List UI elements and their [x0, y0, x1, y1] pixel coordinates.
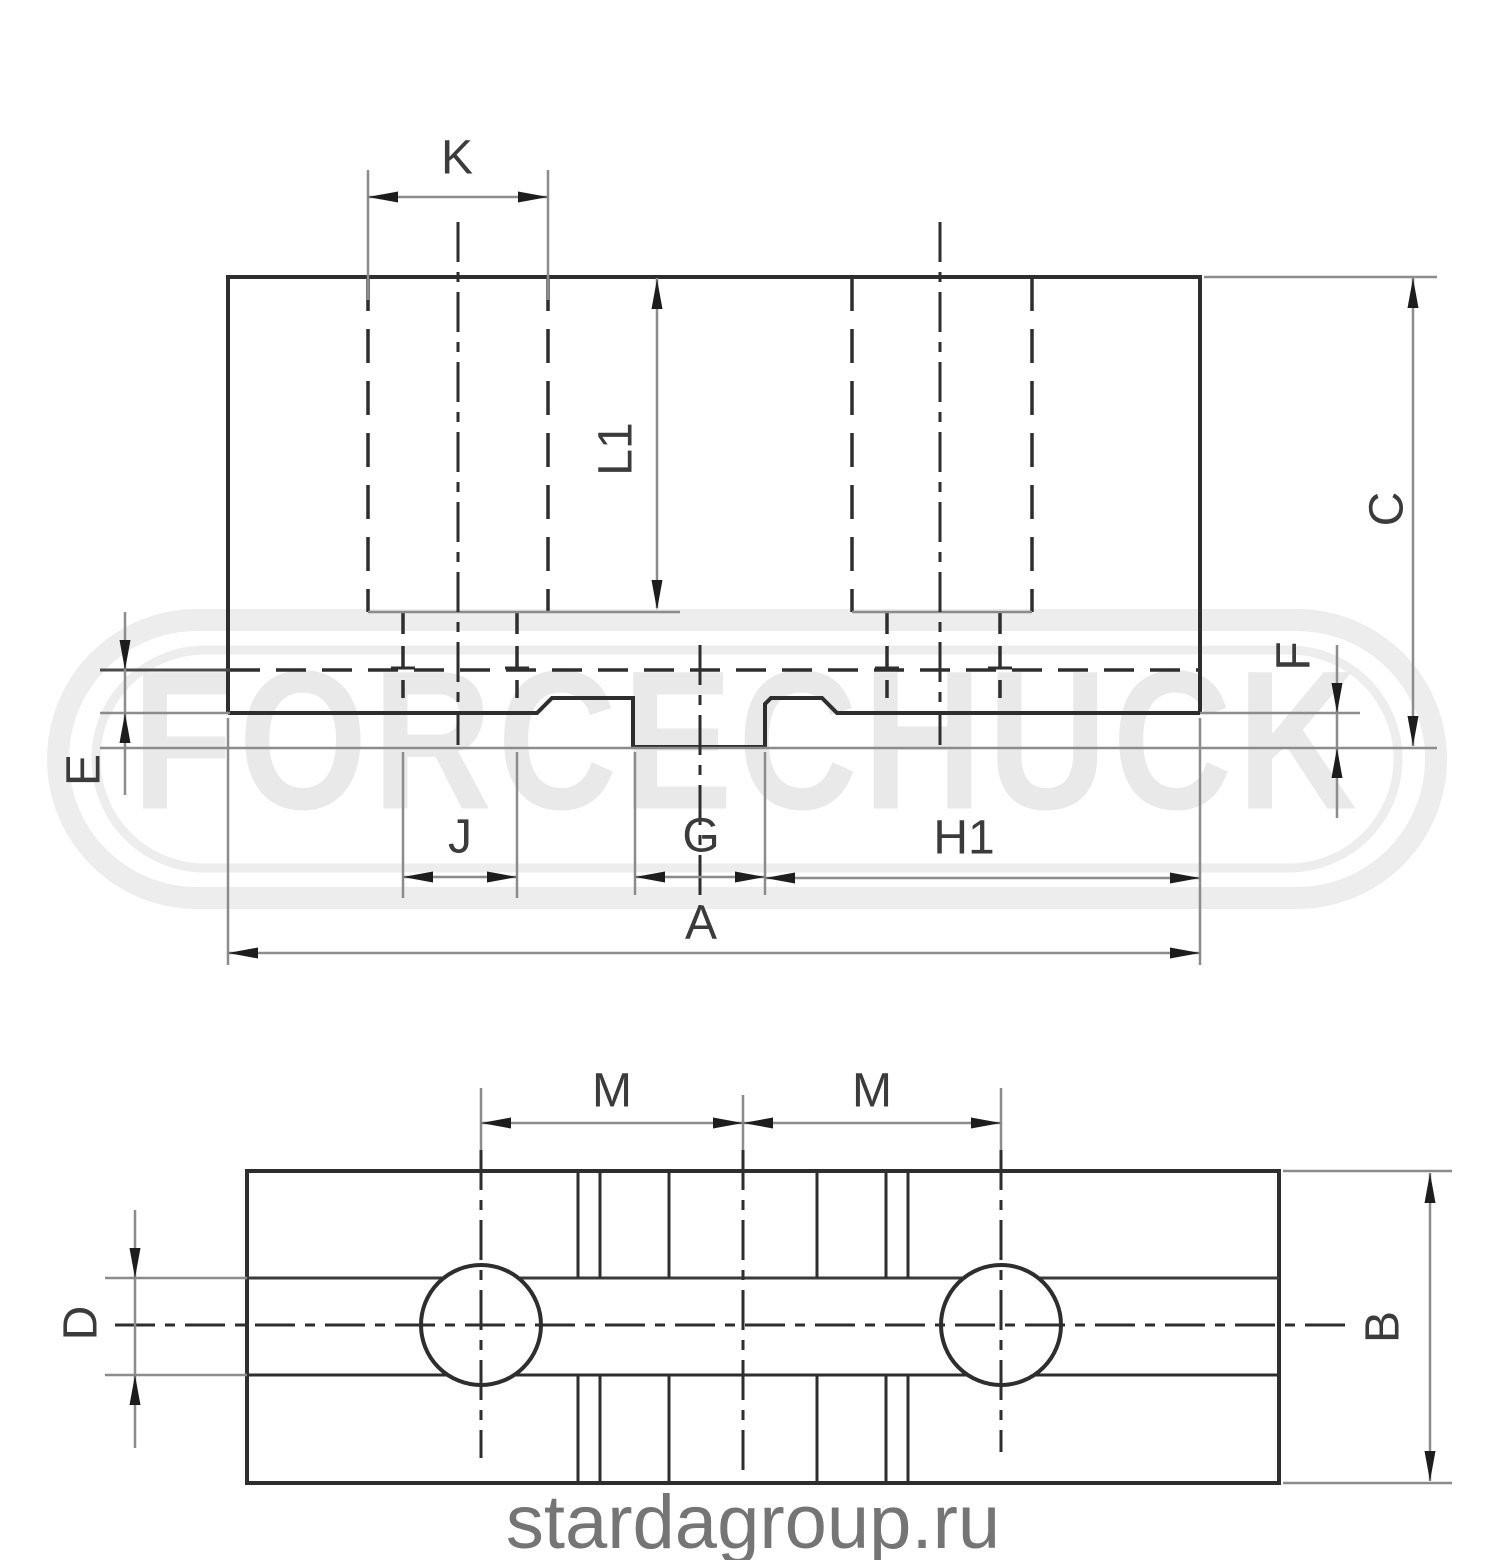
technical-drawing-canvas: FORCECHUCK: [0, 0, 1492, 1560]
dim-label-k: K: [441, 132, 473, 185]
watermark: FORCECHUCK: [58, 620, 1436, 898]
dim-label-j: J: [448, 811, 472, 864]
plan-view-body: [247, 1171, 1279, 1483]
dim-label-b: B: [1357, 1311, 1410, 1343]
dim-label-l1: L1: [590, 422, 643, 475]
dim-D: D: [55, 1210, 248, 1448]
dim-label-c: C: [1361, 492, 1414, 527]
plan-view-centerlines: [115, 1150, 1352, 1478]
watermark-text: FORCECHUCK: [132, 630, 1362, 851]
dim-L1: L1: [590, 278, 663, 610]
plan-view: M M D B: [55, 1065, 1453, 1484]
dim-M: M M: [481, 1065, 1001, 1151]
dim-label-f: F: [1268, 641, 1321, 670]
dim-B: B: [1283, 1171, 1452, 1483]
footer-url: stardagroup.ru: [506, 1480, 1000, 1560]
dim-label-g: G: [682, 810, 719, 863]
dim-label-h1: H1: [933, 812, 994, 865]
dim-label-m-left: M: [592, 1065, 632, 1118]
drawing-page: FORCECHUCK: [0, 0, 1492, 1560]
dim-label-e: E: [58, 754, 111, 786]
dim-label-m-right: M: [852, 1065, 892, 1118]
dim-label-a: A: [685, 897, 717, 950]
dim-label-d: D: [55, 1306, 108, 1341]
